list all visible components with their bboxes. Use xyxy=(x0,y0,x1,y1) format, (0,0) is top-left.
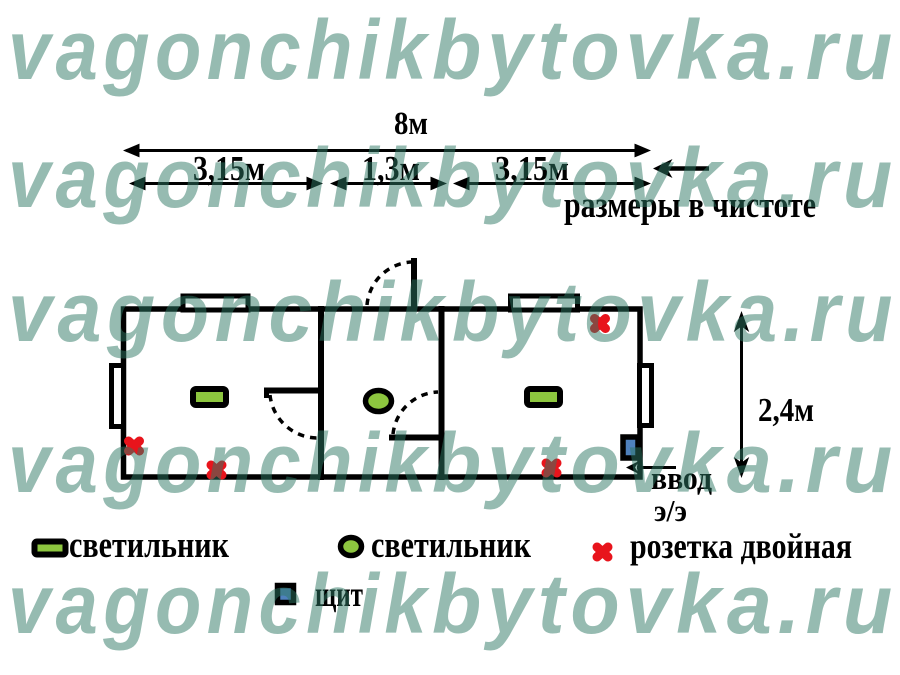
svg-text:vagonchik: vagonchik xyxy=(8,3,432,97)
svg-text:bytovka.ru: bytovka.ru xyxy=(452,265,898,359)
svg-text:vagonchik: vagonchik xyxy=(8,265,449,359)
svg-text:bytovka.ru: bytovka.ru xyxy=(432,557,898,651)
svg-text:bytovka.ru: bytovka.ru xyxy=(432,3,898,97)
svg-text:vagonchik: vagonchik xyxy=(8,416,432,510)
svg-text:bytovka.ru: bytovka.ru xyxy=(432,131,898,225)
svg-text:vagonchik: vagonchik xyxy=(8,131,432,225)
svg-text:bytovka.ru: bytovka.ru xyxy=(432,416,898,510)
svg-text:vagonchik: vagonchik xyxy=(8,557,432,651)
